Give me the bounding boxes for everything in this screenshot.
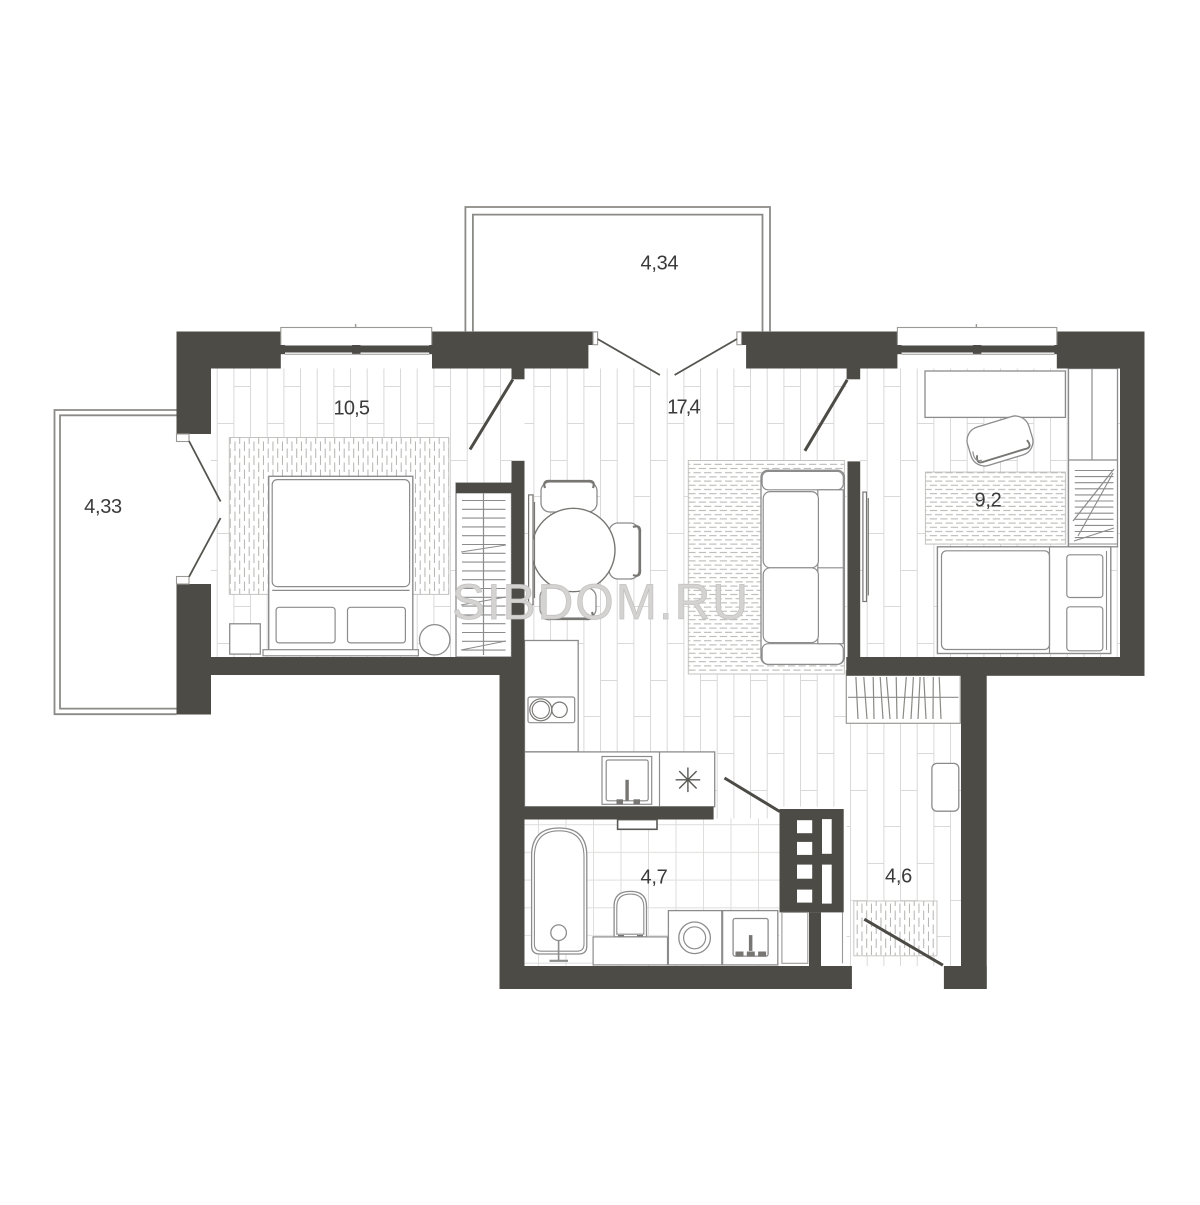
svg-text:9,2: 9,2 [975,490,1002,512]
svg-text:4,34: 4,34 [641,253,679,275]
svg-text:17,4: 17,4 [667,396,700,418]
svg-text:4,33: 4,33 [84,496,122,518]
svg-text:10,5: 10,5 [334,397,370,419]
svg-text:4,6: 4,6 [885,865,912,887]
svg-text:4,7: 4,7 [641,867,668,889]
svg-text:SIBDOM.RU: SIBDOM.RU [452,574,750,630]
